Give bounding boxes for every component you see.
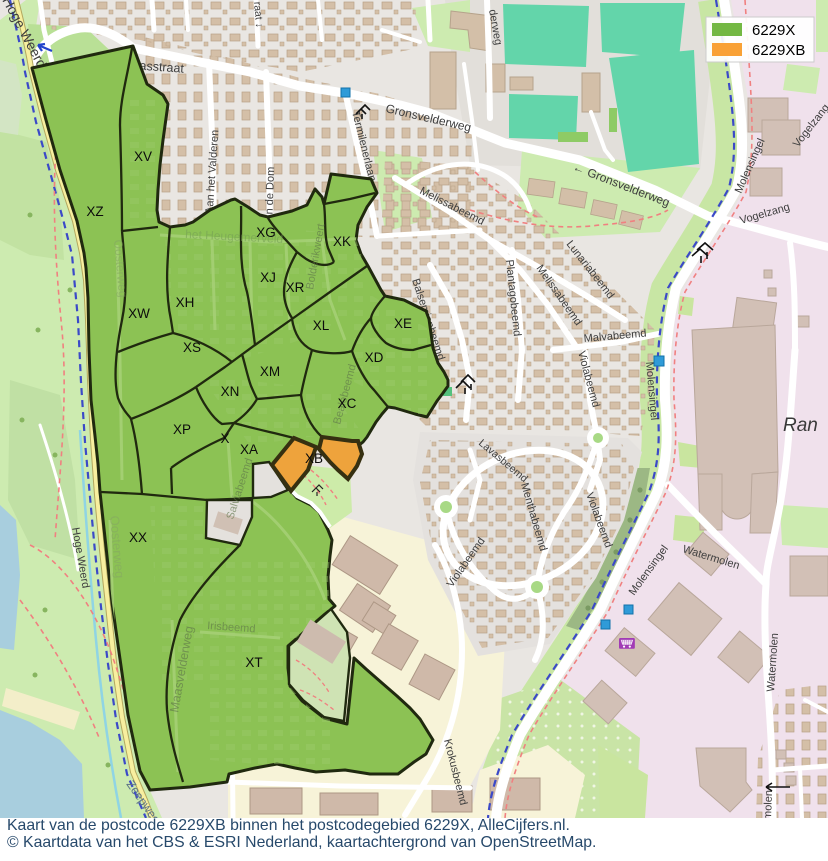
svg-text:XB: XB — [305, 451, 323, 466]
svg-text:XN: XN — [221, 384, 240, 399]
svg-text:6229X: 6229X — [752, 22, 795, 39]
svg-text:© Kaartdata van het CBS & ESRI: © Kaartdata van het CBS & ESRI Nederland… — [7, 834, 596, 851]
svg-text:XT: XT — [245, 655, 262, 670]
svg-text:XS: XS — [183, 340, 201, 355]
svg-text:XE: XE — [394, 316, 412, 331]
svg-text:XL: XL — [313, 318, 330, 333]
svg-text:raat ↓: raat ↓ — [251, 1, 265, 28]
svg-text:Ran: Ran — [783, 415, 818, 436]
svg-text:XA: XA — [240, 442, 258, 457]
svg-text:XD: XD — [365, 350, 384, 365]
svg-text:XX: XX — [129, 530, 147, 545]
svg-text:XW: XW — [128, 306, 150, 321]
svg-text:XV: XV — [134, 149, 152, 164]
svg-text:XG: XG — [256, 225, 276, 240]
svg-text:XR: XR — [286, 280, 305, 295]
svg-text:XZ: XZ — [86, 204, 103, 219]
svg-text:XH: XH — [176, 295, 195, 310]
svg-text:XM: XM — [260, 364, 280, 379]
svg-text:Kaart van de postcode 6229XB b: Kaart van de postcode 6229XB binnen het … — [7, 817, 570, 834]
svg-text:XC: XC — [338, 396, 357, 411]
svg-text:XP: XP — [173, 422, 191, 437]
svg-text:XK: XK — [333, 234, 351, 249]
svg-text:X: X — [220, 431, 229, 446]
svg-text:XJ: XJ — [260, 270, 276, 285]
svg-text:6229XB: 6229XB — [752, 42, 805, 59]
